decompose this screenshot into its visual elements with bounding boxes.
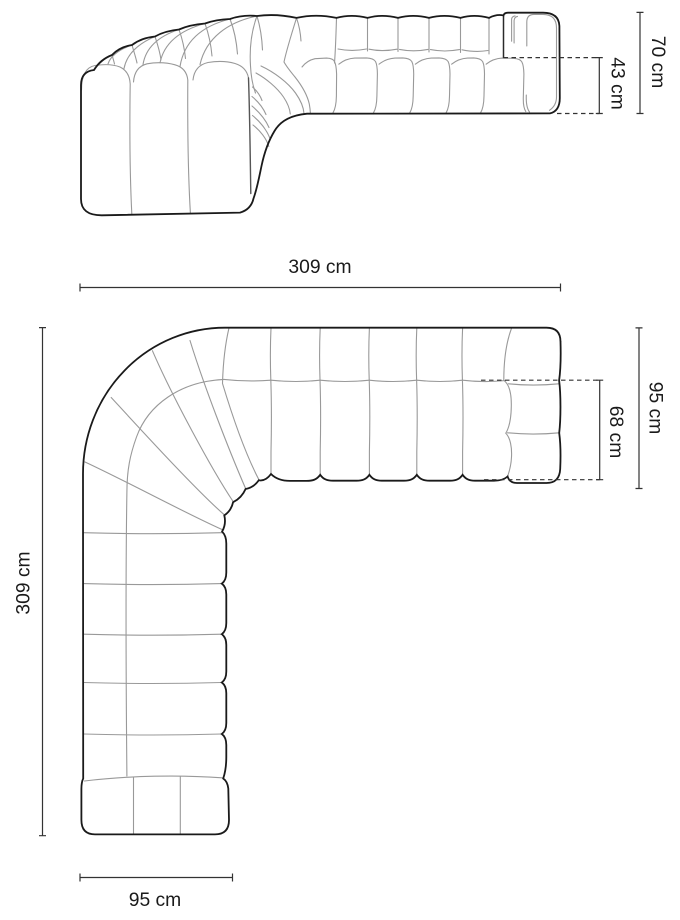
svg-text:70 cm: 70 cm bbox=[647, 36, 668, 89]
svg-text:309 cm: 309 cm bbox=[14, 551, 35, 614]
svg-text:43 cm: 43 cm bbox=[607, 57, 628, 110]
svg-text:309 cm: 309 cm bbox=[288, 257, 351, 278]
svg-text:95 cm: 95 cm bbox=[644, 382, 665, 435]
svg-text:68 cm: 68 cm bbox=[605, 406, 626, 459]
svg-text:95 cm: 95 cm bbox=[129, 890, 182, 911]
